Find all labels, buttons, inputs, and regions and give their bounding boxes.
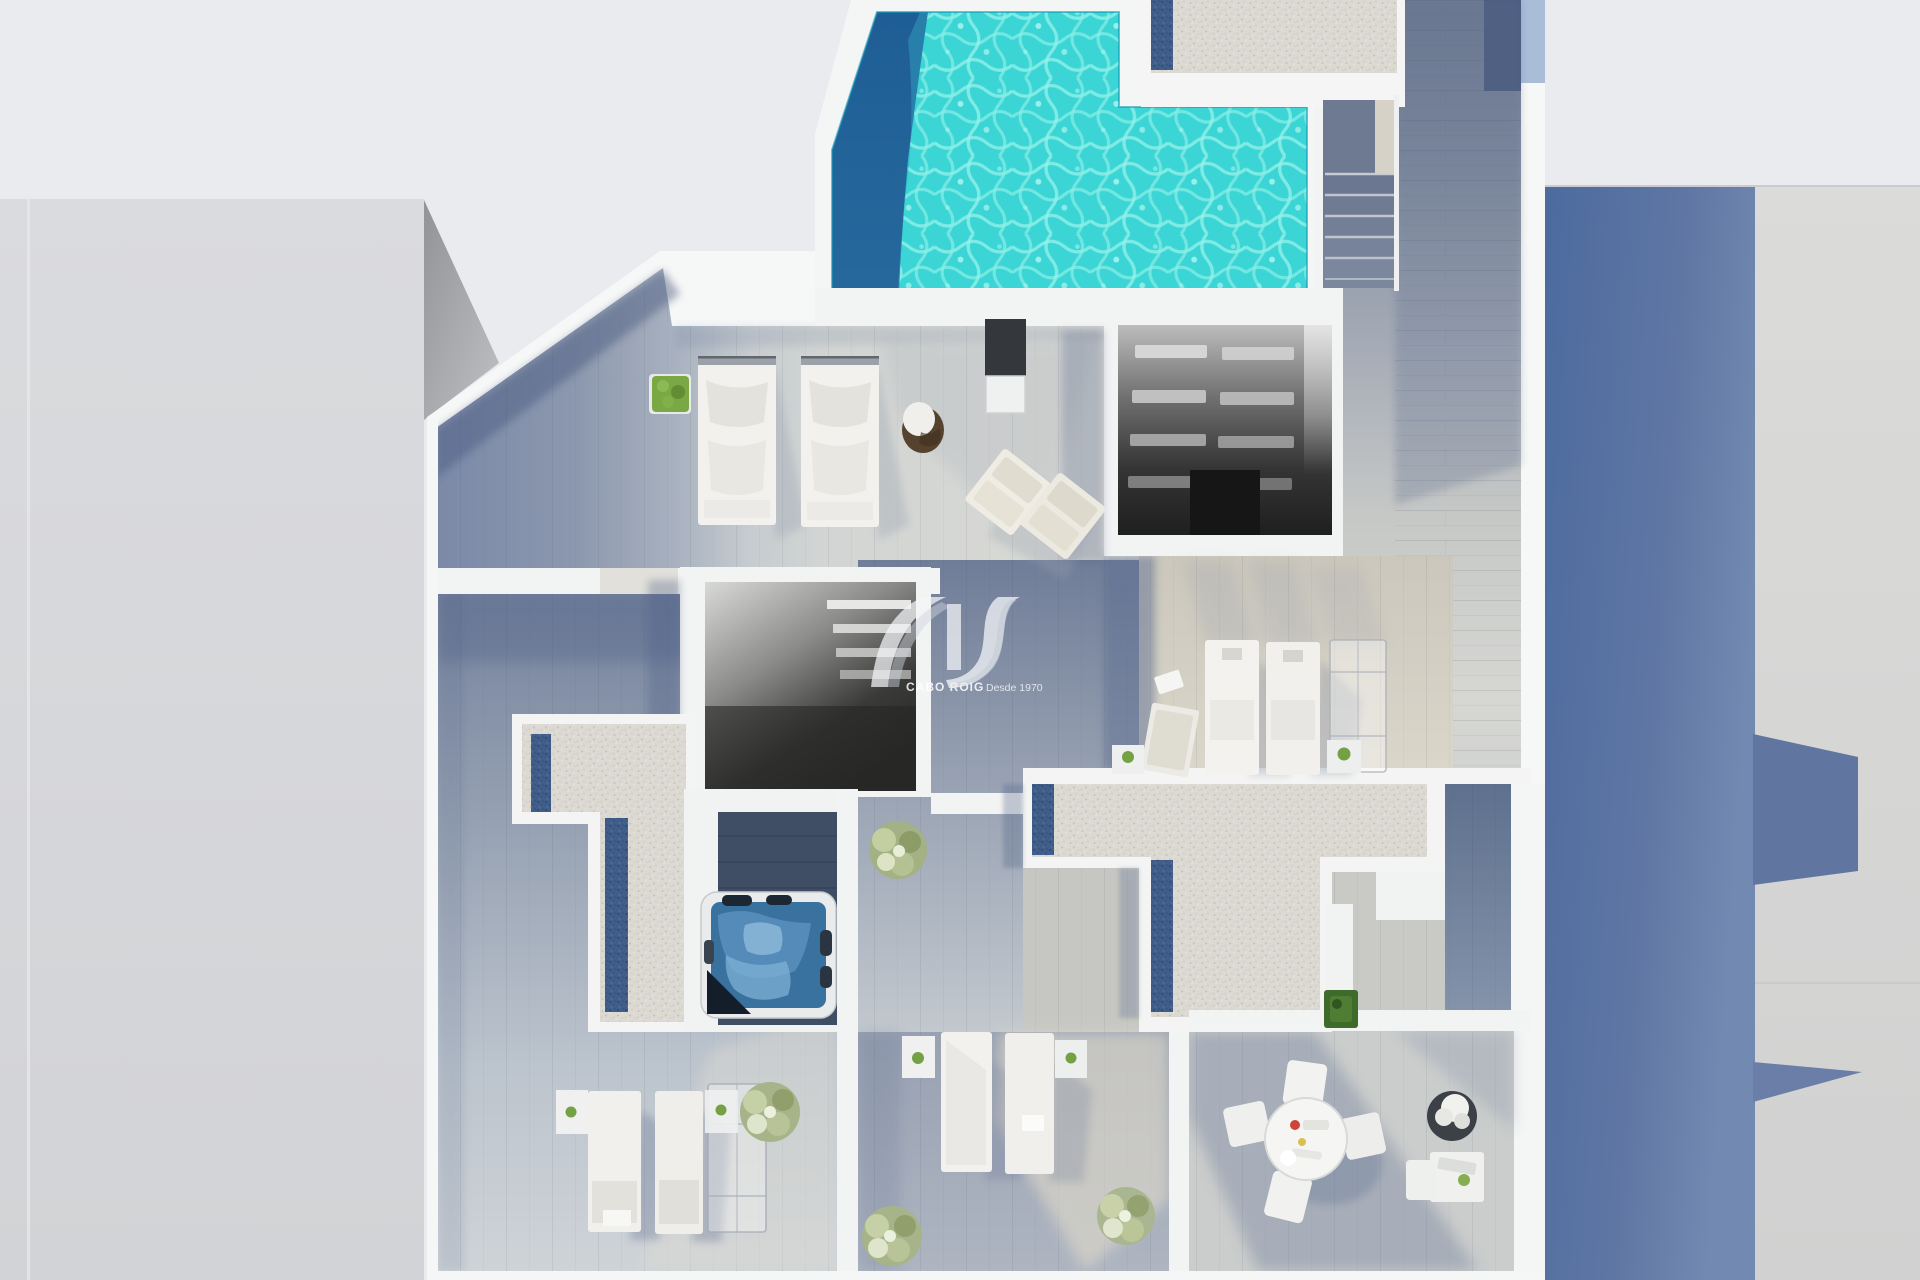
svg-text:CABO ROIG: CABO ROIG	[906, 680, 984, 694]
svg-text:Desde 1970: Desde 1970	[986, 682, 1043, 694]
